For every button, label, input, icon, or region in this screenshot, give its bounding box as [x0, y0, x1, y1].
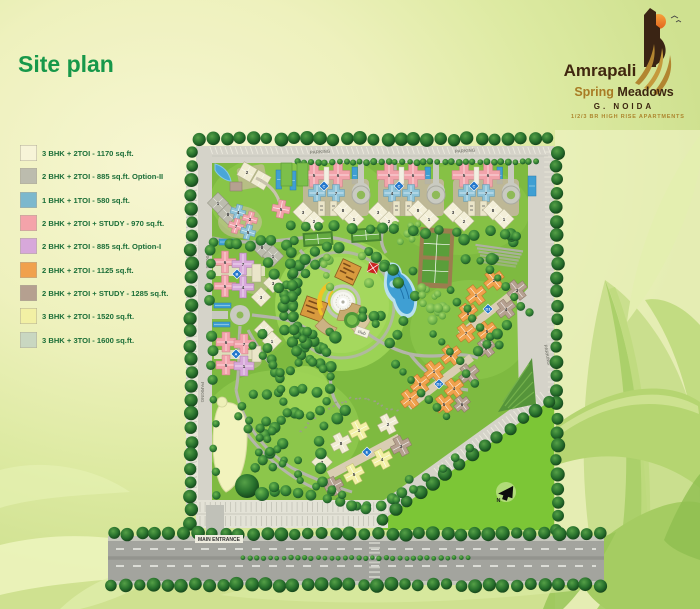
svg-text:PARKING: PARKING: [200, 382, 205, 403]
svg-text:C: C: [398, 184, 401, 189]
svg-text:C: C: [473, 184, 476, 189]
svg-text:A: A: [235, 352, 238, 357]
svg-text:C: C: [323, 184, 326, 189]
svg-text:N: N: [497, 498, 501, 504]
svg-text:E: E: [366, 450, 369, 455]
svg-text:MAIN ENTRANCE: MAIN ENTRANCE: [198, 537, 241, 543]
svg-text:D1: D1: [485, 307, 491, 312]
svg-text:B: B: [236, 272, 239, 277]
svg-text:D2: D2: [436, 382, 442, 387]
